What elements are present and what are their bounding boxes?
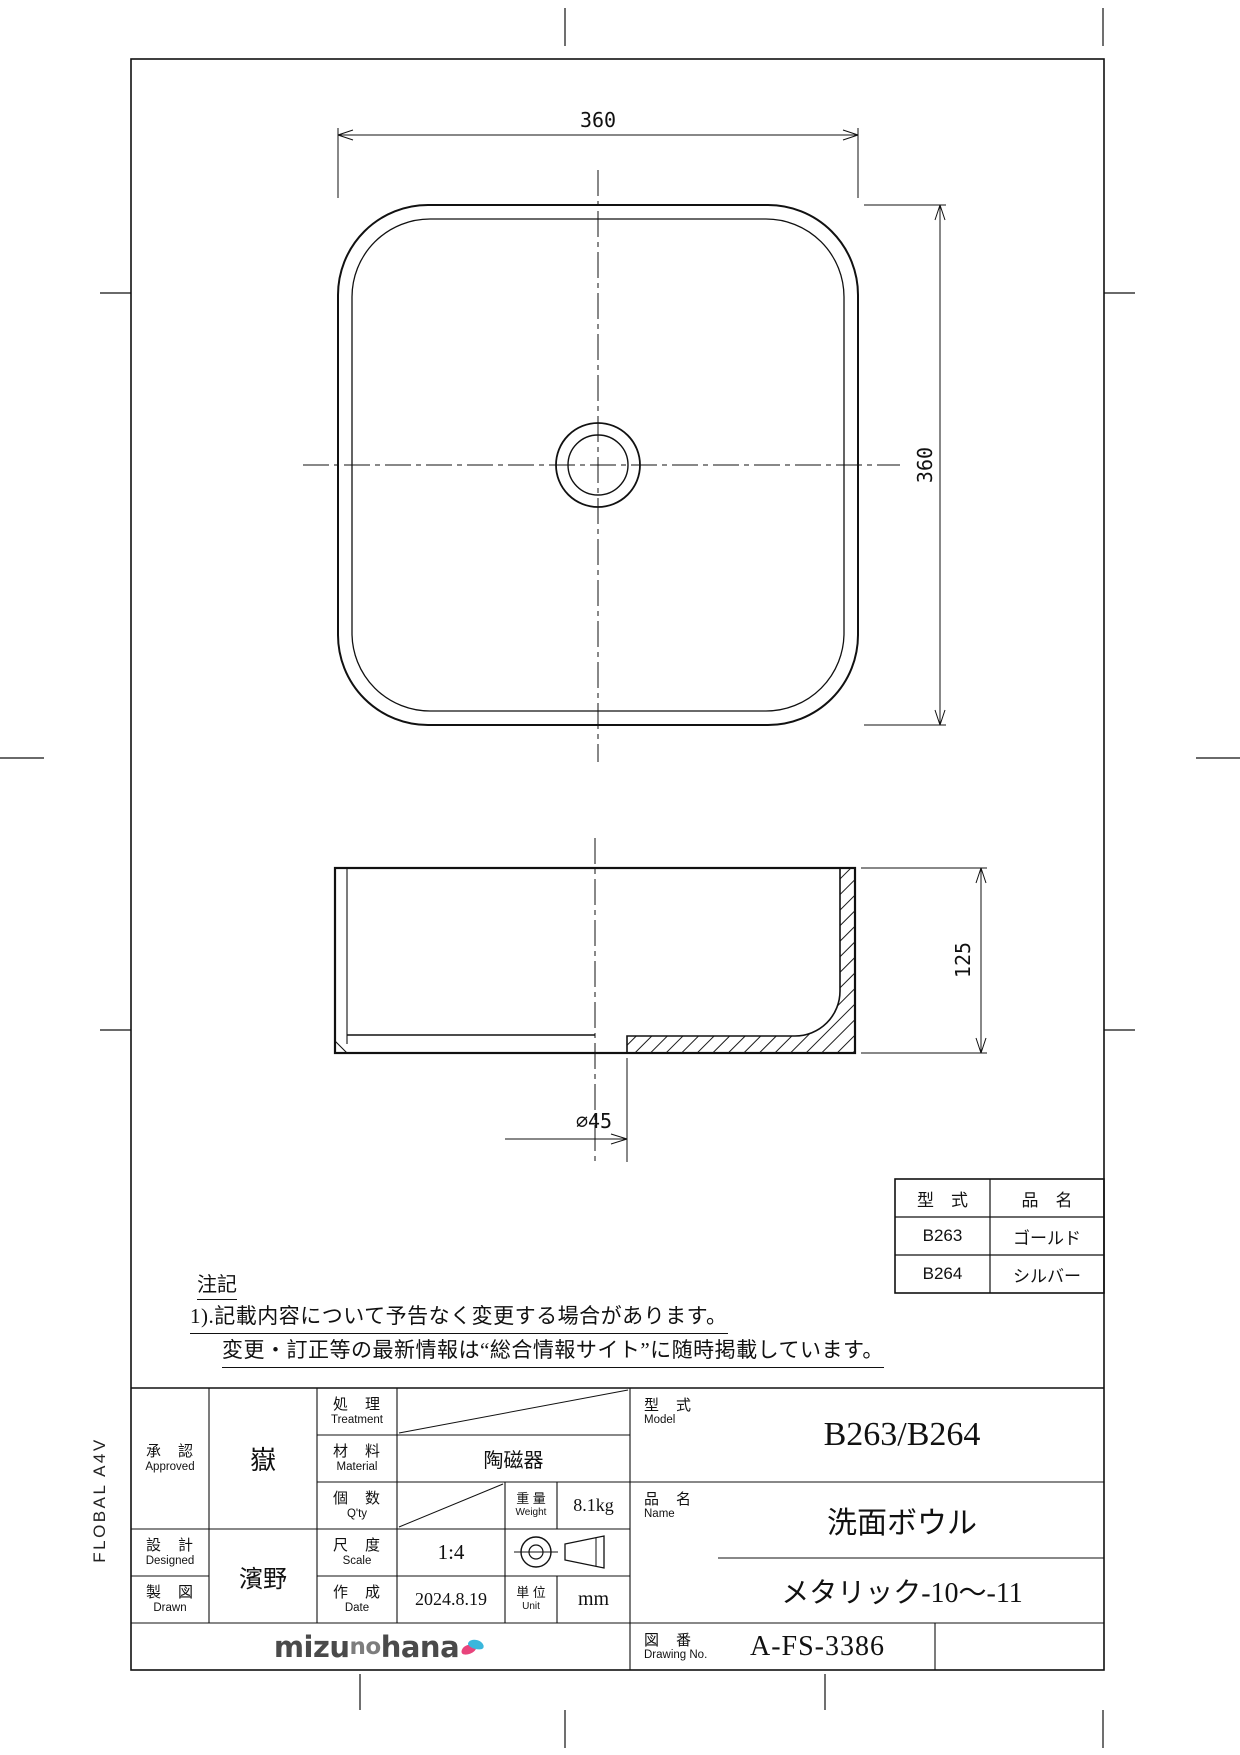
- drain-dia-dim-label: ∅45: [558, 1108, 630, 1134]
- product-variant: メタリック-10～-11: [700, 1558, 1104, 1623]
- material-label: 材 料 Material: [317, 1435, 397, 1482]
- weight-label: 重 量 Weight: [505, 1482, 557, 1529]
- date-value: 2024.8.19: [397, 1576, 505, 1623]
- section-height-dim-label: 125: [951, 930, 975, 990]
- note-line-2: 変更・訂正等の最新情報は“総合情報サイト”に随時掲載しています。: [222, 1334, 884, 1368]
- approved-label: 承 認 Approved: [131, 1388, 209, 1529]
- parts-table-header-model: 型 式: [895, 1179, 990, 1217]
- designed-label: 設 計 Designed: [131, 1529, 209, 1576]
- projection-symbol: [514, 1536, 604, 1568]
- approver-name: 嶽: [209, 1388, 317, 1529]
- logo-text: hana: [381, 1630, 459, 1664]
- unit-value: mm: [557, 1576, 630, 1623]
- unit-label: 単 位 Unit: [505, 1576, 557, 1623]
- scale-value: 1:4: [397, 1529, 505, 1576]
- logo-text: mizu: [274, 1630, 350, 1664]
- notes-heading: 注記: [197, 1268, 237, 1300]
- parts-table-row-name: シルバー: [990, 1255, 1104, 1293]
- note-line-1: 1).記載内容について予告なく変更する場合があります。: [190, 1300, 728, 1334]
- drawing-no-value: A-FS-3386: [700, 1623, 935, 1670]
- parts-table-row-model: B264: [895, 1255, 990, 1293]
- drawn-label: 製 図 Drawn: [131, 1576, 209, 1623]
- plan-height-dim-label: 360: [913, 435, 937, 495]
- logo-leaf-icon: [461, 1636, 487, 1658]
- designer-name: 濱野: [209, 1529, 317, 1623]
- sheet-format-label: FLOBAL A4V: [88, 1420, 112, 1580]
- treatment-label: 処 理 Treatment: [317, 1388, 397, 1435]
- scale-label: 尺 度 Scale: [317, 1529, 397, 1576]
- product-name: 洗面ボウル: [700, 1482, 1104, 1558]
- plan-width-dim-label: 360: [568, 108, 628, 132]
- parts-table-row-model: B263: [895, 1217, 990, 1255]
- logo-text: no: [350, 1634, 381, 1660]
- qty-label: 個 数 Q'ty: [317, 1482, 397, 1529]
- parts-table-row-name: ゴールド: [990, 1217, 1104, 1255]
- date-label: 作 成 Date: [317, 1576, 397, 1623]
- material-value: 陶磁器: [397, 1435, 630, 1482]
- weight-value: 8.1kg: [557, 1482, 630, 1529]
- model-value: B263/B264: [700, 1388, 1104, 1482]
- plan-view: [303, 170, 900, 762]
- company-logo: mizunohana: [131, 1623, 630, 1670]
- drawing-sheet: 360 360 125 ∅45 型 式 品 名 B263 ゴールド B264 シ…: [0, 0, 1240, 1755]
- parts-table-header-name: 品 名: [990, 1179, 1104, 1217]
